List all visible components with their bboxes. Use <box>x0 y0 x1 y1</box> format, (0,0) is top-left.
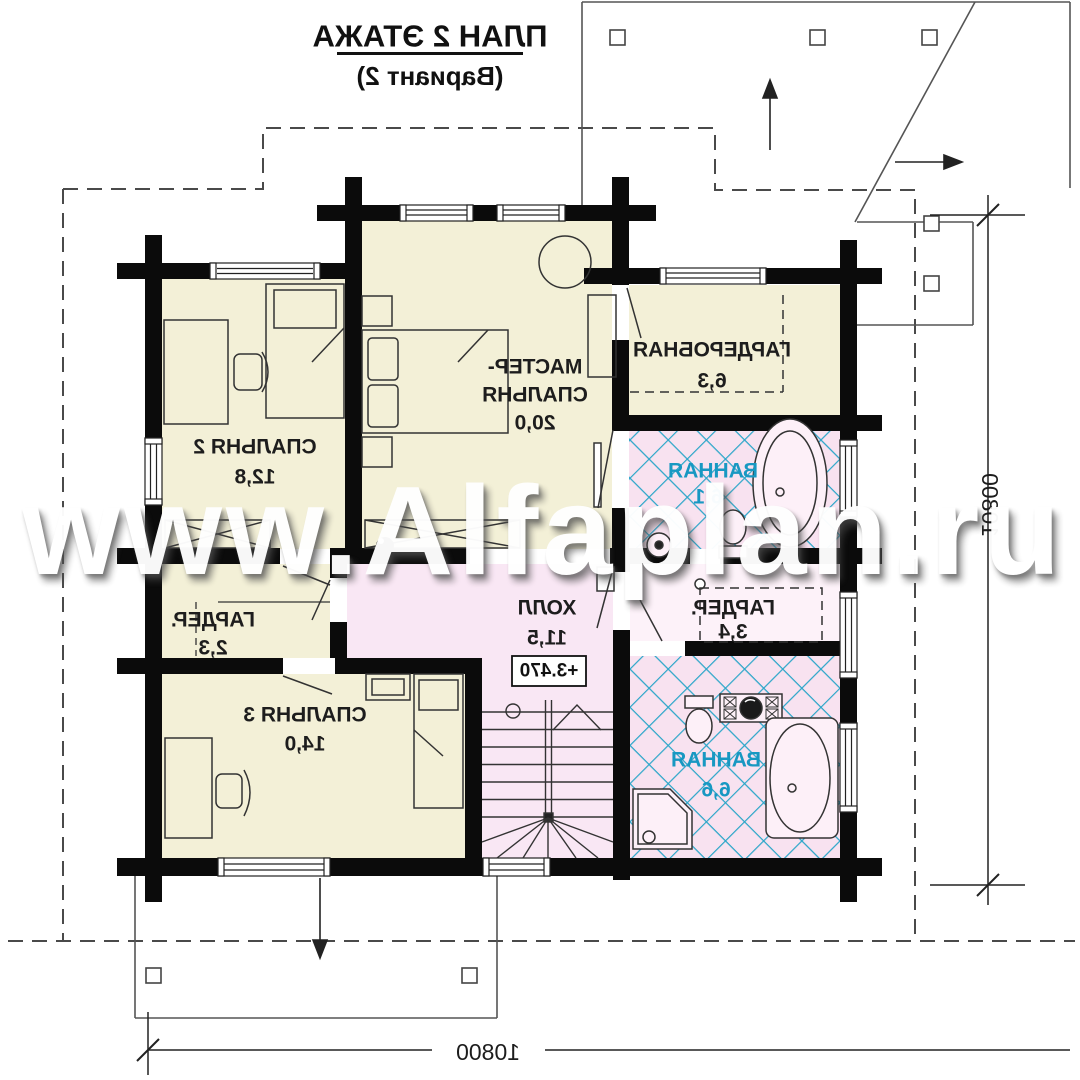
page-subtitle: (Вариант 2) <box>357 61 504 91</box>
title-block: ПЛАН 2 ЭТАЖА (Вариант 2) <box>312 19 547 92</box>
room-area-bedroom-2: 12,8 <box>234 466 275 489</box>
room-area-wardrobe: 6,3 <box>697 370 726 393</box>
room-area-bathroom-1: 6,1 <box>693 486 723 509</box>
elevation-value: +3.470 <box>520 661 579 682</box>
window <box>660 268 766 284</box>
window <box>483 858 550 876</box>
floor-plan-page: +3.470 10800 10800 ПЛАН 2 ЭТАЖА (Вариант… <box>0 0 1080 1080</box>
room-area-hall: 11,5 <box>527 627 567 650</box>
window <box>145 438 162 505</box>
window <box>840 723 857 812</box>
dimension-right-value: 10800 <box>977 473 1003 537</box>
room-label-bedroom-3: СПАЛЬНЯ 3 <box>243 704 366 727</box>
window <box>840 440 857 517</box>
room-label-closet-1: ГАРДЕР. <box>171 609 255 632</box>
window <box>497 205 565 221</box>
door-panel <box>597 567 614 591</box>
direction-arrow-up-icon <box>763 80 777 150</box>
window <box>218 858 330 876</box>
room-area-bathroom-2: 6,6 <box>701 779 730 802</box>
direction-arrow-down-icon <box>313 878 327 958</box>
room-label-hall: ХОЛЛ <box>518 597 577 620</box>
elevation-mark: +3.470 <box>512 656 586 686</box>
page-title: ПЛАН 2 ЭТАЖА <box>312 19 547 54</box>
room-label-bedroom-2: СПАЛЬНЯ 2 <box>193 436 316 459</box>
window <box>210 263 320 279</box>
room-area-closet-1: 2,3 <box>198 637 227 660</box>
drain <box>776 488 784 496</box>
room-label-closet-2: ГАРДЕР. <box>691 597 775 620</box>
toilet-tank <box>719 546 747 558</box>
room-area-closet-2: 3,4 <box>718 621 748 644</box>
room-label-bathroom-1: ВАННАЯ <box>668 460 758 483</box>
window <box>840 592 857 678</box>
room-label-master-2: СПАЛЬНЯ <box>482 384 588 407</box>
bathtub-inner <box>763 431 817 535</box>
floor-plan-svg: +3.470 10800 10800 ПЛАН 2 ЭТАЖА (Вариант… <box>0 0 1080 1080</box>
room-label-master-1: МАСТЕР- <box>488 356 583 379</box>
basin <box>740 697 762 719</box>
direction-arrow-right-icon <box>895 155 962 169</box>
toilet-bowl <box>720 510 746 544</box>
bathtub-icon <box>770 724 830 832</box>
room-area-bedroom-3: 14,0 <box>285 733 326 756</box>
shower-drain <box>643 831 655 843</box>
toilet-tank <box>685 696 713 708</box>
window <box>400 205 473 221</box>
room-area-master: 20,0 <box>515 412 556 435</box>
hall-fixture <box>376 537 394 555</box>
dimension-bottom-value: 10800 <box>456 1039 520 1065</box>
drain <box>788 784 796 792</box>
room-label-wardrobe: ГАРДЕРОБНАЯ <box>633 339 791 362</box>
room-label-bathroom-2: ВАННАЯ <box>671 749 761 772</box>
sink-drain <box>655 541 663 549</box>
toilet-bowl <box>686 709 712 743</box>
